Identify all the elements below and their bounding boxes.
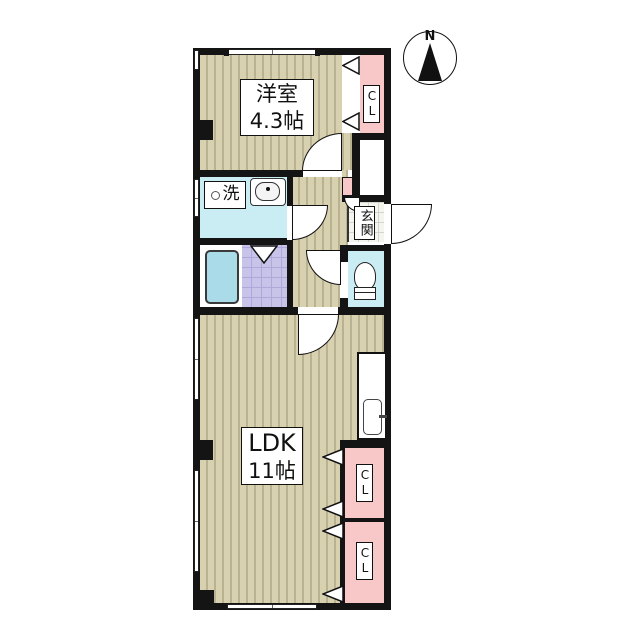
storage-left-wall [352,133,360,202]
folding-door-icon [322,585,344,603]
vanity-sink [250,178,286,206]
closet-lower-1-label-text: CL [357,468,372,498]
closet-lower-1-label: CL [356,464,373,502]
floor-plan: 洋室 4.3帖 LDK 11帖 洗 玄関 CL CL CL N [0,0,640,640]
western-room-name: 洋室 [256,81,298,107]
kitchen-counter [357,352,385,440]
washer-label: 洗 [204,181,246,209]
window-left-corner [194,50,199,70]
folding-door-icon [342,112,360,131]
kitchen-closet-divider-wall [340,440,391,448]
vanity-basin [255,182,280,201]
opening-entrance [384,204,391,244]
closet-top-label: CL [363,85,380,123]
opening-western-room [303,170,342,177]
western-room-size: 4.3帖 [250,108,304,134]
pillar-western-room [196,120,213,140]
north-arrow-icon [418,43,442,81]
north-label: N [404,29,456,44]
window-washroom [194,179,199,217]
folding-door-icon [342,56,360,75]
bath-folding-door-icon [250,245,278,264]
faucet-dot [266,187,270,191]
opening-toilet [340,262,348,298]
window-ldk-2 [194,470,199,572]
entrance-door-swing [391,204,432,244]
storage-area [360,140,384,195]
window-top [228,49,316,55]
bathtub [205,250,239,304]
toilet-tank-line [355,292,375,293]
closet-lower-2-label-text: CL [357,546,372,576]
toilet-bowl [354,262,376,290]
pillar-ldk [196,440,213,460]
western-room-label: 洋室 4.3帖 [240,79,314,136]
bathroom-top-wall [193,238,292,245]
closet-lower-divider-wall [340,518,391,522]
toilet-top-wall [342,245,391,251]
folding-door-icon [322,448,344,466]
toilet-tank [354,287,376,300]
outer-wall-right-lower [384,244,391,610]
washing-machine-icon [211,191,220,200]
window-ldk-1 [194,318,199,400]
window-top-end-tick-right [315,48,320,56]
folding-door-icon [322,522,344,540]
folding-door-icon [322,500,344,518]
closet-top-label-text: CL [364,89,379,119]
ldk-name: LDK [248,428,296,458]
entrance-label-text: 玄関 [356,209,372,237]
ldk-top-wall-left [193,307,298,315]
outer-wall-right-upper [384,48,391,204]
washroom-right-wall-upper [287,170,293,207]
ldk-size: 11帖 [248,458,296,484]
washroom-right-wall-lower [287,240,293,315]
washer-label-text: 洗 [223,184,240,205]
north-compass: N [403,31,457,85]
toilet-left-wall-upper [340,245,348,262]
pillar-ldk-corner [198,590,214,604]
ldk-label: LDK 11帖 [241,427,303,485]
closet-lower-2-label: CL [356,542,373,580]
window-bottom [227,604,317,609]
window-top-end-tick-left [224,48,229,56]
entrance-label: 玄関 [354,206,375,240]
toilet-left-wall-lower [340,298,348,312]
kitchen-faucet [379,415,387,418]
